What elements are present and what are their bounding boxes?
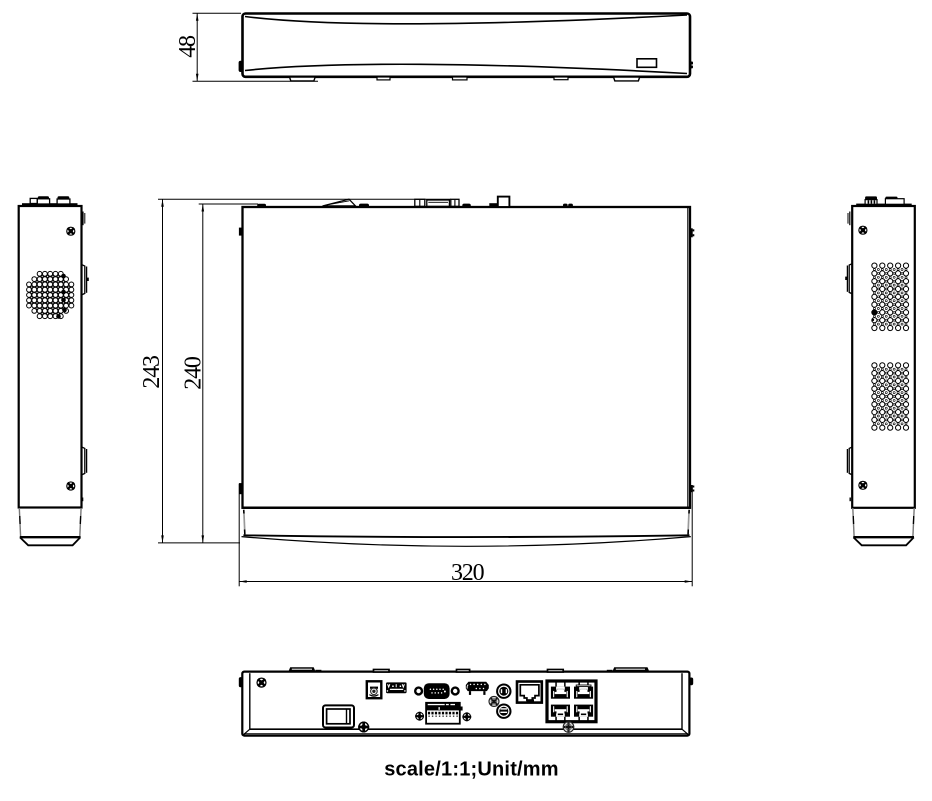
svg-text:320: 320	[451, 560, 485, 586]
svg-text:scale/1:1;Unit/mm: scale/1:1;Unit/mm	[384, 759, 559, 781]
svg-text:48: 48	[175, 35, 201, 58]
svg-text:240: 240	[181, 356, 207, 390]
svg-text:243: 243	[139, 355, 165, 389]
